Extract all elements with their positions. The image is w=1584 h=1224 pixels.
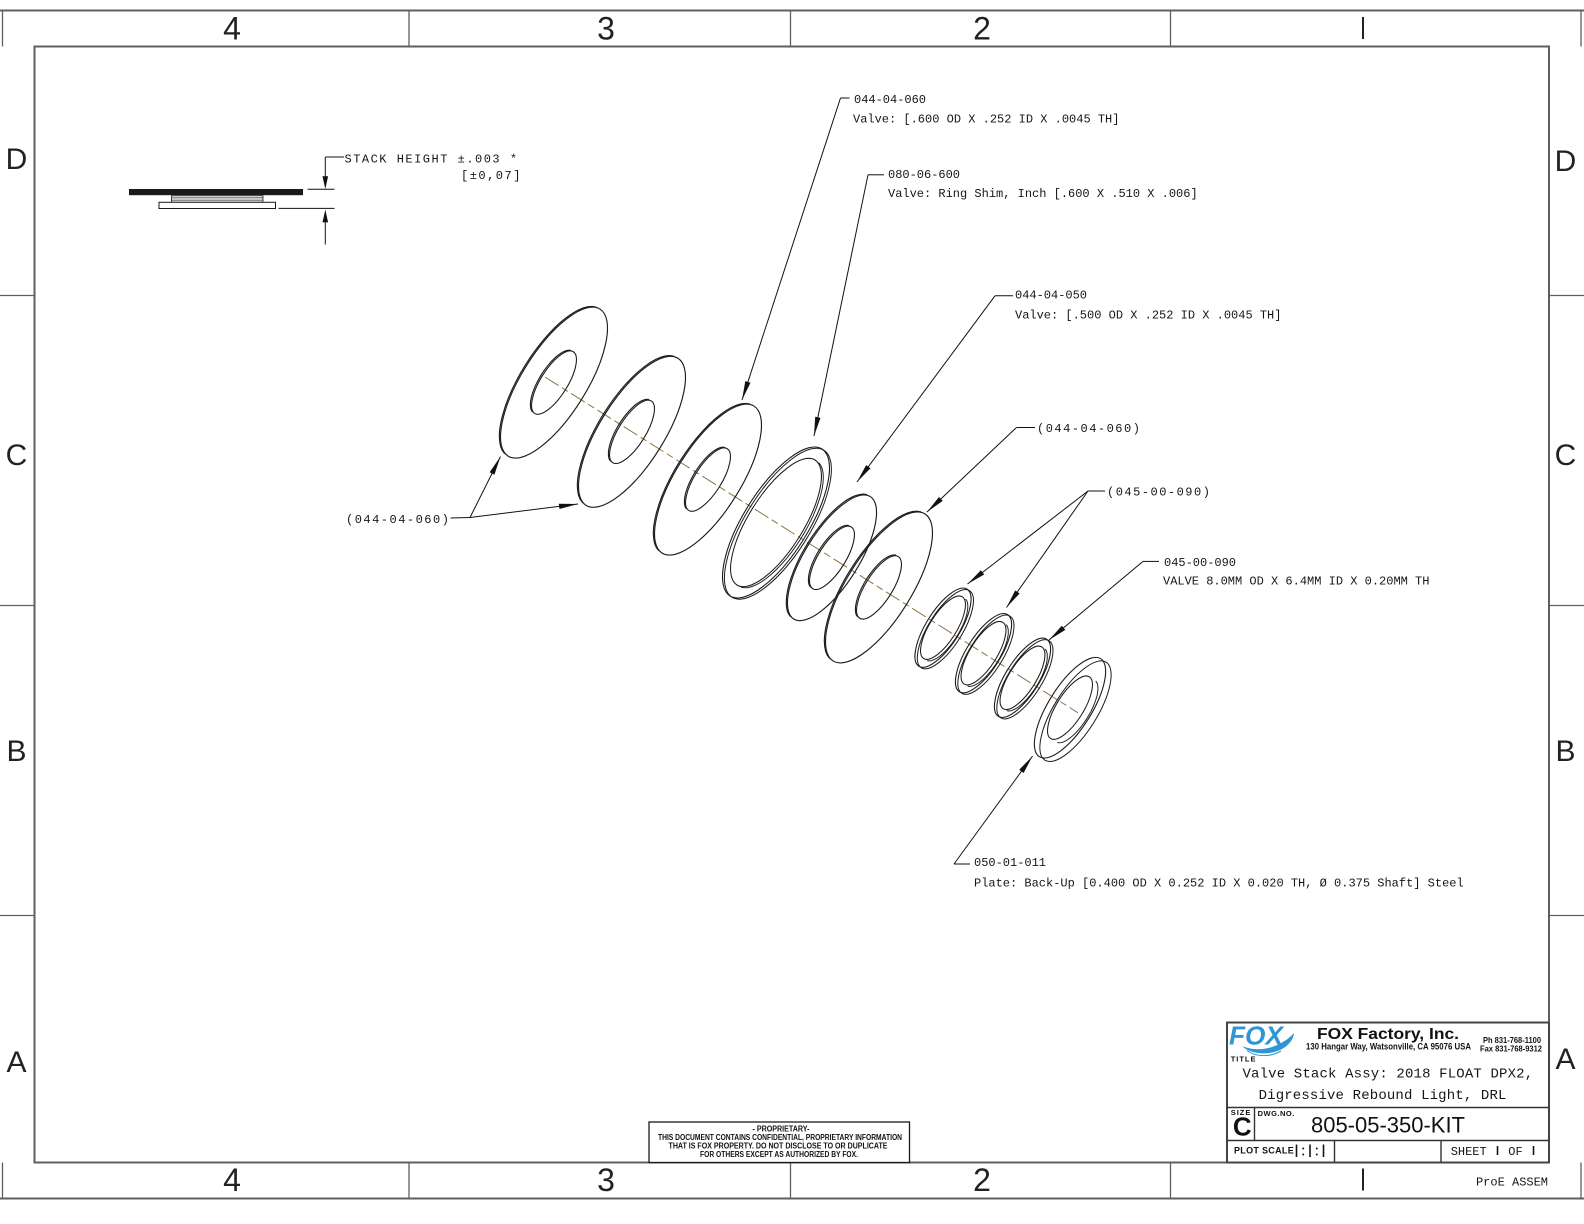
svg-text:Valve: Ring Shim, Inch [.600 X: Valve: Ring Shim, Inch [.600 X .510 X .0… [888, 187, 1198, 201]
svg-text:DWG.NO.: DWG.NO. [1258, 1109, 1295, 1118]
svg-text:D: D [6, 143, 28, 176]
svg-text:3: 3 [597, 11, 615, 47]
svg-text:080-06-600: 080-06-600 [888, 168, 960, 182]
svg-text:B: B [6, 735, 26, 768]
svg-text:C: C [6, 439, 28, 472]
svg-text:A: A [1555, 1043, 1575, 1076]
svg-text:FOR OTHERS EXCEPT AS AUTHORIZE: FOR OTHERS EXCEPT AS AUTHORIZED BY FOX. [700, 1150, 858, 1159]
svg-text:Valve: [.500 OD X .252 ID X .0: Valve: [.500 OD X .252 ID X .0045 TH] [1015, 308, 1281, 322]
svg-text:Digressive Rebound Light, DRL: Digressive Rebound Light, DRL [1259, 1088, 1507, 1104]
svg-text:C: C [1233, 1112, 1252, 1142]
svg-text:SHEET: SHEET [1451, 1145, 1487, 1159]
svg-text:B: B [1555, 735, 1575, 768]
svg-text:(044-04-060): (044-04-060) [1037, 422, 1141, 436]
svg-text:C: C [1555, 439, 1577, 472]
svg-text:Valve: [.600 OD X .252 ID X .0: Valve: [.600 OD X .252 ID X .0045 TH] [853, 113, 1119, 127]
svg-text:(044-04-060): (044-04-060) [346, 513, 450, 527]
svg-text:Valve Stack Assy: 2018 FLOAT D: Valve Stack Assy: 2018 FLOAT DPX2, [1243, 1067, 1534, 1083]
svg-text:STACK HEIGHT ±.003 *: STACK HEIGHT ±.003 * [345, 152, 519, 166]
svg-text:3: 3 [597, 1162, 615, 1198]
svg-text:045-00-090: 045-00-090 [1164, 556, 1236, 570]
svg-text:805-05-350-KIT: 805-05-350-KIT [1311, 1112, 1465, 1137]
svg-text:VALVE 8.0MM OD X 6.4MM ID X 0.: VALVE 8.0MM OD X 6.4MM ID X 0.20MM TH [1163, 575, 1429, 589]
svg-text:A: A [6, 1046, 26, 1079]
svg-text:2: 2 [973, 1162, 991, 1198]
svg-text:Plate: Back-Up [0.400 OD X 0.2: Plate: Back-Up [0.400 OD X 0.252 ID X 0.… [974, 876, 1464, 890]
svg-text:[±0,07]: [±0,07] [461, 169, 522, 183]
svg-text:4: 4 [223, 11, 241, 47]
svg-text:PLOT SCALE: PLOT SCALE [1234, 1146, 1294, 1156]
svg-text:OF: OF [1508, 1145, 1522, 1159]
svg-text:(045-00-090): (045-00-090) [1107, 486, 1211, 500]
svg-text:050-01-011: 050-01-011 [974, 856, 1046, 870]
svg-text:Fax 831-768-9312: Fax 831-768-9312 [1480, 1045, 1542, 1054]
svg-text:130 Hangar Way, Watsonville, C: 130 Hangar Way, Watsonville, CA 95076 US… [1306, 1042, 1472, 1052]
svg-text:4: 4 [223, 1162, 241, 1198]
svg-text:TITLE: TITLE [1231, 1055, 1257, 1064]
svg-text:044-04-060: 044-04-060 [854, 93, 926, 107]
svg-text:- PROPRIETARY-: - PROPRIETARY- [753, 1124, 810, 1133]
svg-text:ProE ASSEM: ProE ASSEM [1476, 1176, 1548, 1190]
svg-text:044-04-050: 044-04-050 [1015, 289, 1087, 303]
svg-text:2: 2 [973, 11, 991, 47]
svg-text:D: D [1555, 145, 1577, 178]
